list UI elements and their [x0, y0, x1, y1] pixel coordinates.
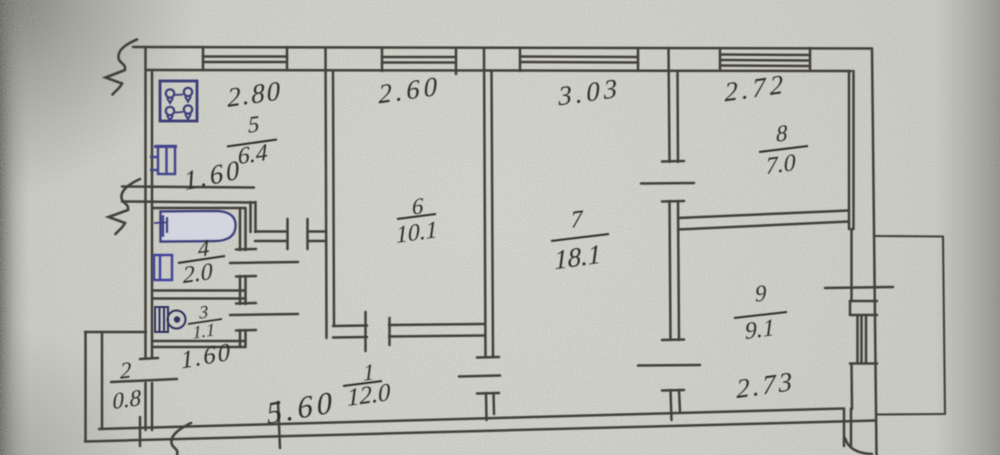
svg-text:0.8: 0.8: [112, 384, 142, 414]
svg-text:9: 9: [755, 279, 768, 307]
svg-text:8: 8: [776, 119, 789, 147]
svg-text:7: 7: [570, 206, 584, 234]
svg-text:2: 2: [120, 356, 133, 384]
svg-text:5: 5: [248, 110, 260, 138]
svg-text:2.0: 2.0: [182, 259, 213, 289]
svg-text:6.4: 6.4: [237, 140, 268, 170]
svg-text:9.1: 9.1: [744, 315, 775, 345]
svg-text:1.1: 1.1: [192, 319, 215, 342]
svg-text:7.0: 7.0: [765, 150, 796, 180]
